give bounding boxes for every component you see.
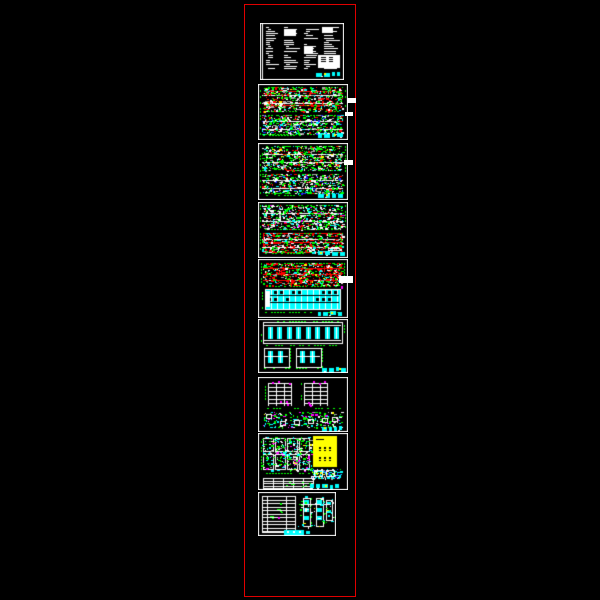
sheet-tables-details[interactable] [258,492,336,536]
sheet-floor-plan-3[interactable] [258,202,348,258]
leader-callout [347,98,356,103]
sheet-rear-side-elevations-drawing [258,319,348,373]
leader-callout [345,112,353,116]
sheet-floor-plan-3-drawing [258,202,348,258]
sheet-floor-plan-1[interactable] [258,84,348,140]
sheet-floor-plan-1-drawing [258,84,348,140]
sheet-general-notes[interactable] [260,23,344,80]
sheet-unit-plans-schedule[interactable] [258,433,348,490]
sheet-roof-plan-front-elevation[interactable] [258,259,348,318]
sheet-sections-stair-details-drawing [258,377,348,432]
leader-callout [344,160,353,165]
sheet-roof-plan-front-elevation-drawing [258,259,348,318]
sheet-floor-plan-2[interactable] [258,143,348,200]
sheet-floor-plan-2-drawing [258,143,348,200]
sheet-tables-details-drawing [258,492,336,536]
sheet-sections-stair-details[interactable] [258,377,348,432]
cad-viewer-canvas[interactable] [0,0,600,600]
sheet-rear-side-elevations[interactable] [258,319,348,373]
leader-callout [339,276,353,283]
sheet-general-notes-drawing [260,23,344,80]
sheet-unit-plans-schedule-drawing [258,433,348,490]
